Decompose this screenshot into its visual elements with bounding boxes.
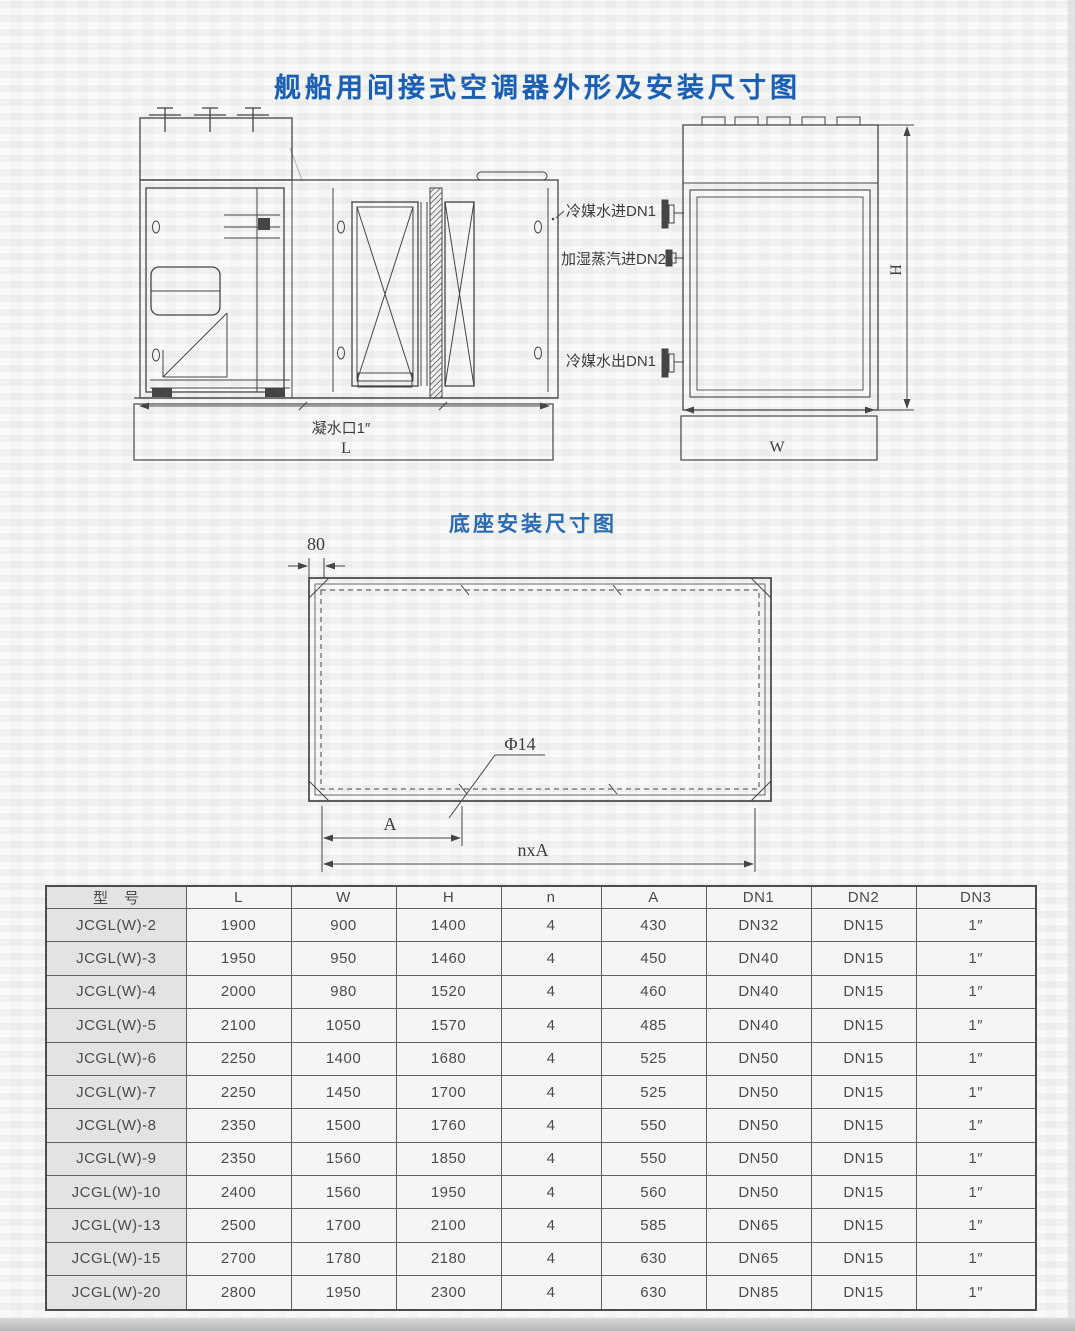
hole-diameter-label: Φ14 bbox=[504, 734, 535, 754]
base-installation-diagram: 底座安装尺寸图 80 Φ14 bbox=[288, 512, 771, 872]
cabinet-outline bbox=[140, 180, 558, 398]
chilled-water-out-stub bbox=[662, 349, 684, 377]
value-cell: 2300 bbox=[396, 1276, 501, 1310]
column-header: W bbox=[291, 886, 396, 909]
value-cell: 1″ bbox=[916, 1109, 1036, 1142]
table-row: JCGL(W)-2190090014004430DN32DN151″ bbox=[46, 909, 1036, 942]
value-cell: DN15 bbox=[811, 1242, 916, 1275]
value-cell: 1780 bbox=[291, 1242, 396, 1275]
value-cell: DN15 bbox=[811, 1009, 916, 1042]
value-cell: 525 bbox=[601, 1042, 706, 1075]
value-cell: 950 bbox=[291, 942, 396, 975]
value-cell: DN32 bbox=[706, 909, 811, 942]
table-row: JCGL(W)-52100105015704485DN40DN151″ bbox=[46, 1009, 1036, 1042]
chilled-water-in-stub bbox=[662, 200, 684, 228]
panel-handle bbox=[535, 347, 542, 359]
side-base: W bbox=[681, 410, 877, 460]
table-row: JCGL(W)-132500170021004585DN65DN151″ bbox=[46, 1209, 1036, 1242]
value-cell: 1400 bbox=[396, 909, 501, 942]
scan-edge-right bbox=[1068, 0, 1075, 1331]
model-cell: JCGL(W)-6 bbox=[46, 1042, 186, 1075]
model-cell: JCGL(W)-20 bbox=[46, 1276, 186, 1310]
value-cell: 1950 bbox=[291, 1276, 396, 1310]
value-cell: 1″ bbox=[916, 1142, 1036, 1175]
value-cell: 2800 bbox=[186, 1276, 291, 1310]
front-base: 凝水口1″ L bbox=[134, 398, 558, 460]
column-header: H bbox=[396, 886, 501, 909]
column-header: DN3 bbox=[916, 886, 1036, 909]
value-cell: 1700 bbox=[396, 1075, 501, 1108]
value-cell: 1950 bbox=[396, 1176, 501, 1209]
value-cell: 485 bbox=[601, 1009, 706, 1042]
table-row: JCGL(W)-102400156019504560DN50DN151″ bbox=[46, 1176, 1036, 1209]
value-cell: 2350 bbox=[186, 1142, 291, 1175]
duct-stub bbox=[149, 108, 181, 132]
value-cell: DN15 bbox=[811, 1176, 916, 1209]
value-cell: 980 bbox=[291, 975, 396, 1008]
column-header: n bbox=[501, 886, 601, 909]
chilled-water-in-label: 冷媒水进DN1 bbox=[566, 203, 656, 220]
value-cell: DN15 bbox=[811, 1276, 916, 1310]
table-row: JCGL(W)-92350156018504550DN50DN151″ bbox=[46, 1142, 1036, 1175]
coil-section bbox=[333, 172, 548, 398]
value-cell: 1680 bbox=[396, 1042, 501, 1075]
panel-handle bbox=[153, 349, 160, 361]
value-cell: DN85 bbox=[706, 1276, 811, 1310]
value-cell: 1500 bbox=[291, 1109, 396, 1142]
column-header: DN1 bbox=[706, 886, 811, 909]
value-cell: 550 bbox=[601, 1109, 706, 1142]
value-cell: 2700 bbox=[186, 1242, 291, 1275]
value-cell: 4 bbox=[501, 1276, 601, 1310]
value-cell: 1900 bbox=[186, 909, 291, 942]
duct-stub bbox=[194, 108, 226, 132]
value-cell: DN50 bbox=[706, 1075, 811, 1108]
edge-offset-dimension: 80 bbox=[288, 534, 345, 578]
fan-section bbox=[146, 180, 292, 398]
value-cell: 4 bbox=[501, 1176, 601, 1209]
scan-edge-bottom bbox=[0, 1318, 1075, 1331]
value-cell: DN15 bbox=[811, 909, 916, 942]
value-cell: 450 bbox=[601, 942, 706, 975]
x-brace-panel bbox=[352, 202, 418, 386]
value-cell: 630 bbox=[601, 1242, 706, 1275]
panel-handle bbox=[338, 347, 345, 359]
model-cell: JCGL(W)-15 bbox=[46, 1242, 186, 1275]
value-cell: 900 bbox=[291, 909, 396, 942]
value-cell: DN40 bbox=[706, 942, 811, 975]
value-cell: 1″ bbox=[916, 1075, 1036, 1108]
panel-handle bbox=[153, 221, 160, 233]
value-cell: DN15 bbox=[811, 1142, 916, 1175]
model-cell: JCGL(W)-4 bbox=[46, 975, 186, 1008]
value-cell: 630 bbox=[601, 1276, 706, 1310]
value-cell: 1450 bbox=[291, 1075, 396, 1108]
panel-handle bbox=[338, 221, 345, 233]
value-cell: 1″ bbox=[916, 975, 1036, 1008]
value-cell: 525 bbox=[601, 1075, 706, 1108]
value-cell: 1″ bbox=[916, 1209, 1036, 1242]
length-dim-label: L bbox=[341, 440, 351, 457]
heater-strip bbox=[430, 188, 442, 398]
value-cell: 2180 bbox=[396, 1242, 501, 1275]
x-brace-panel bbox=[445, 202, 474, 386]
model-cell: JCGL(W)-8 bbox=[46, 1109, 186, 1142]
model-cell: JCGL(W)-7 bbox=[46, 1075, 186, 1108]
column-header: L bbox=[186, 886, 291, 909]
value-cell: 585 bbox=[601, 1209, 706, 1242]
steam-in-label: 加湿蒸汽进DN2 bbox=[561, 251, 666, 268]
base-frame bbox=[309, 578, 771, 801]
steam-in-stub bbox=[666, 250, 684, 266]
value-cell: 550 bbox=[601, 1142, 706, 1175]
model-cell: JCGL(W)-3 bbox=[46, 942, 186, 975]
value-cell: 4 bbox=[501, 1109, 601, 1142]
fan-scroll bbox=[163, 313, 227, 377]
value-cell: 4 bbox=[501, 1042, 601, 1075]
height-dimension: H bbox=[878, 125, 914, 410]
model-cell: JCGL(W)-5 bbox=[46, 1009, 186, 1042]
air-plenum-box bbox=[140, 108, 302, 180]
condensate-outlet-label: 凝水口1″ bbox=[312, 420, 371, 437]
pitch-dimension: A bbox=[322, 806, 462, 846]
value-cell: DN15 bbox=[811, 1209, 916, 1242]
access-door bbox=[690, 190, 870, 397]
top-tabs bbox=[702, 117, 860, 125]
value-cell: 1050 bbox=[291, 1009, 396, 1042]
value-cell: 1460 bbox=[396, 942, 501, 975]
technical-drawings: 凝水口1″ L 冷媒水进DN1 加湿蒸汽进DN2 冷媒水出DN1 bbox=[0, 0, 1075, 880]
value-cell: 1760 bbox=[396, 1109, 501, 1142]
value-cell: 2400 bbox=[186, 1176, 291, 1209]
value-cell: 4 bbox=[501, 1009, 601, 1042]
base-diagram-title: 底座安装尺寸图 bbox=[449, 512, 617, 536]
chilled-water-out-label: 冷媒水出DN1 bbox=[566, 353, 656, 370]
value-cell: 1″ bbox=[916, 1042, 1036, 1075]
model-cell: JCGL(W)-9 bbox=[46, 1142, 186, 1175]
value-cell: 2250 bbox=[186, 1075, 291, 1108]
value-cell: DN50 bbox=[706, 1142, 811, 1175]
value-cell: 2100 bbox=[186, 1009, 291, 1042]
height-dim-label: H bbox=[888, 264, 905, 276]
front-view: 凝水口1″ L bbox=[134, 108, 558, 460]
total-pitch-dim-label: nxA bbox=[518, 840, 549, 860]
value-cell: DN50 bbox=[706, 1109, 811, 1142]
value-cell: 2250 bbox=[186, 1042, 291, 1075]
value-cell: 1″ bbox=[916, 1276, 1036, 1310]
table-row: JCGL(W)-202800195023004630DN85DN151″ bbox=[46, 1276, 1036, 1310]
value-cell: 1560 bbox=[291, 1142, 396, 1175]
panel-handle bbox=[535, 221, 542, 233]
value-cell: 2500 bbox=[186, 1209, 291, 1242]
model-cell: JCGL(W)-13 bbox=[46, 1209, 186, 1242]
table-row: JCGL(W)-152700178021804630DN65DN151″ bbox=[46, 1242, 1036, 1275]
value-cell: 4 bbox=[501, 1242, 601, 1275]
value-cell: 1″ bbox=[916, 942, 1036, 975]
value-cell: 460 bbox=[601, 975, 706, 1008]
table-row: JCGL(W)-72250145017004525DN50DN151″ bbox=[46, 1075, 1036, 1108]
value-cell: 1950 bbox=[186, 942, 291, 975]
value-cell: 1400 bbox=[291, 1042, 396, 1075]
value-cell: 1560 bbox=[291, 1176, 396, 1209]
table-row: JCGL(W)-4200098015204460DN40DN151″ bbox=[46, 975, 1036, 1008]
value-cell: DN15 bbox=[811, 1109, 916, 1142]
value-cell: DN15 bbox=[811, 942, 916, 975]
value-cell: 560 bbox=[601, 1176, 706, 1209]
value-cell: 1″ bbox=[916, 1242, 1036, 1275]
value-cell: DN15 bbox=[811, 1042, 916, 1075]
value-cell: 2350 bbox=[186, 1109, 291, 1142]
value-cell: 2100 bbox=[396, 1209, 501, 1242]
column-header: DN2 bbox=[811, 886, 916, 909]
pitch-dim-label: A bbox=[384, 814, 397, 834]
pipe-labels: 冷媒水进DN1 加湿蒸汽进DN2 冷媒水出DN1 bbox=[552, 203, 666, 370]
value-cell: DN50 bbox=[706, 1176, 811, 1209]
value-cell: 1850 bbox=[396, 1142, 501, 1175]
model-cell: JCGL(W)-2 bbox=[46, 909, 186, 942]
value-cell: DN65 bbox=[706, 1209, 811, 1242]
value-cell: 4 bbox=[501, 1209, 601, 1242]
table-row: JCGL(W)-62250140016804525DN50DN151″ bbox=[46, 1042, 1036, 1075]
side-view: H W bbox=[662, 117, 914, 460]
value-cell: 4 bbox=[501, 1075, 601, 1108]
top-cover-plate bbox=[477, 172, 547, 180]
value-cell: 1″ bbox=[916, 909, 1036, 942]
value-cell: 2000 bbox=[186, 975, 291, 1008]
column-header: 型 号 bbox=[46, 886, 186, 909]
value-cell: 4 bbox=[501, 909, 601, 942]
value-cell: 4 bbox=[501, 975, 601, 1008]
table-header-row: 型 号LWHnADN1DN2DN3 bbox=[46, 886, 1036, 909]
hole-callout: Φ14 bbox=[449, 734, 545, 818]
value-cell: DN15 bbox=[811, 975, 916, 1008]
value-cell: 1″ bbox=[916, 1009, 1036, 1042]
value-cell: 430 bbox=[601, 909, 706, 942]
table-row: JCGL(W)-82350150017604550DN50DN151″ bbox=[46, 1109, 1036, 1142]
width-dim-label: W bbox=[769, 439, 785, 456]
table-row: JCGL(W)-3195095014604450DN40DN151″ bbox=[46, 942, 1036, 975]
value-cell: 4 bbox=[501, 1142, 601, 1175]
value-cell: 1570 bbox=[396, 1009, 501, 1042]
value-cell: 1520 bbox=[396, 975, 501, 1008]
duct-stub bbox=[237, 108, 269, 132]
value-cell: DN15 bbox=[811, 1075, 916, 1108]
edge-offset-label: 80 bbox=[307, 534, 325, 554]
value-cell: 4 bbox=[501, 942, 601, 975]
value-cell: DN65 bbox=[706, 1242, 811, 1275]
model-cell: JCGL(W)-10 bbox=[46, 1176, 186, 1209]
value-cell: 1700 bbox=[291, 1209, 396, 1242]
value-cell: 1″ bbox=[916, 1176, 1036, 1209]
specification-table: 型 号LWHnADN1DN2DN3 JCGL(W)-21900900140044… bbox=[45, 885, 1037, 1311]
value-cell: DN40 bbox=[706, 1009, 811, 1042]
value-cell: DN50 bbox=[706, 1042, 811, 1075]
value-cell: DN40 bbox=[706, 975, 811, 1008]
column-header: A bbox=[601, 886, 706, 909]
